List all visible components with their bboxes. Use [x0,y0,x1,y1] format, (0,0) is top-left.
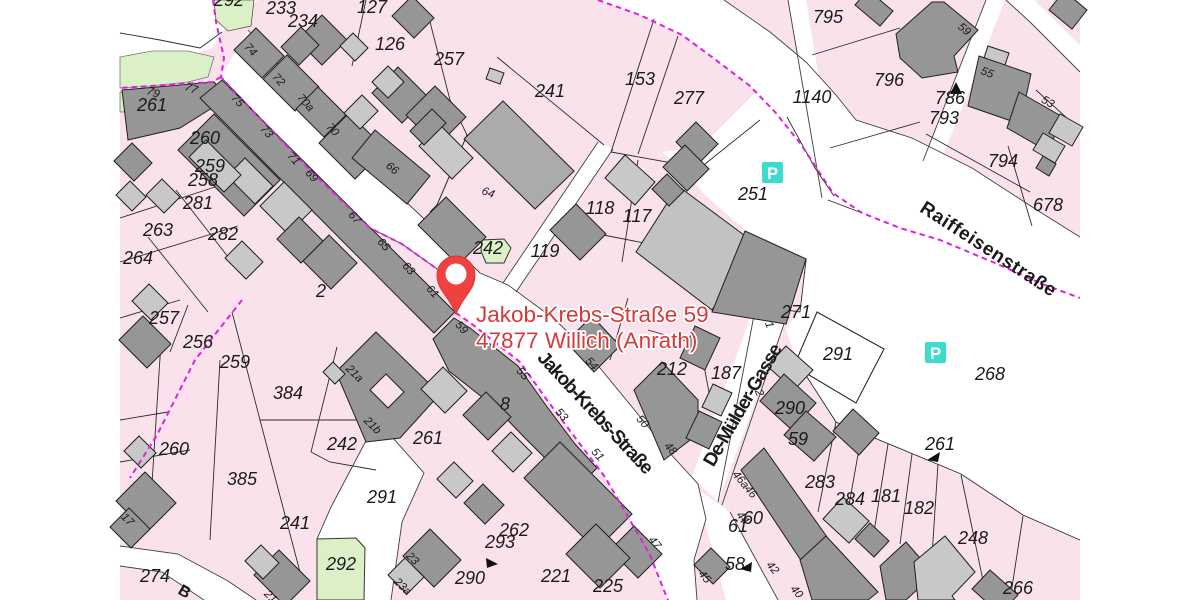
svg-text:290: 290 [454,568,485,588]
svg-text:284: 284 [834,489,865,509]
svg-text:282: 282 [207,224,238,244]
svg-text:292: 292 [213,0,244,10]
svg-text:257: 257 [148,308,180,328]
svg-text:126: 126 [375,34,406,54]
svg-text:234: 234 [287,11,318,31]
svg-text:268: 268 [974,364,1005,384]
svg-text:248: 248 [957,528,988,548]
svg-text:264: 264 [122,248,153,268]
svg-text:291: 291 [366,487,397,507]
svg-text:119: 119 [531,241,560,261]
svg-text:385: 385 [227,469,258,489]
svg-text:290: 290 [774,398,805,418]
svg-text:58: 58 [725,554,745,574]
svg-text:Jakob-Krebs-Straße 59: Jakob-Krebs-Straße 59 [476,302,709,327]
svg-text:291: 291 [822,344,853,364]
svg-text:292: 292 [325,554,356,574]
svg-text:293: 293 [484,532,515,552]
svg-text:153: 153 [625,69,655,89]
svg-text:260: 260 [158,439,189,459]
svg-text:261: 261 [412,428,443,448]
svg-text:283: 283 [804,472,835,492]
svg-text:793: 793 [929,108,959,128]
svg-text:256: 256 [182,332,214,352]
svg-text:118: 118 [586,198,615,218]
svg-text:1140: 1140 [793,87,832,107]
svg-text:274: 274 [139,566,170,586]
svg-text:258: 258 [187,170,218,190]
svg-text:241: 241 [534,81,565,101]
svg-text:47877 Willich (Anrath): 47877 Willich (Anrath) [476,328,697,353]
svg-text:P: P [930,344,941,363]
svg-text:59: 59 [788,429,808,449]
svg-text:678: 678 [1033,195,1063,215]
svg-text:384: 384 [273,383,303,403]
svg-text:795: 795 [813,7,844,27]
svg-text:182: 182 [904,498,934,518]
svg-text:281: 281 [182,193,213,213]
svg-text:127: 127 [357,0,388,17]
svg-text:181: 181 [871,486,901,506]
svg-text:2: 2 [315,281,326,301]
svg-text:266: 266 [1002,578,1034,598]
svg-text:261: 261 [924,434,955,454]
svg-text:251: 251 [737,184,768,204]
svg-text:P: P [767,164,778,183]
svg-text:259: 259 [219,352,250,372]
svg-text:225: 225 [592,576,624,596]
svg-text:786: 786 [935,88,966,108]
svg-text:117: 117 [623,206,653,226]
svg-text:221: 221 [540,566,571,586]
svg-text:242: 242 [472,238,503,258]
svg-text:257: 257 [433,49,465,69]
svg-text:242: 242 [326,434,357,454]
svg-text:241: 241 [279,513,310,533]
svg-text:277: 277 [673,88,705,108]
svg-text:263: 263 [142,220,173,240]
svg-text:796: 796 [874,70,905,90]
svg-text:212: 212 [656,359,687,379]
svg-text:8: 8 [500,394,510,414]
svg-text:260: 260 [189,128,220,148]
svg-text:187: 187 [711,363,742,383]
svg-text:271: 271 [780,302,811,322]
svg-text:794: 794 [988,151,1018,171]
